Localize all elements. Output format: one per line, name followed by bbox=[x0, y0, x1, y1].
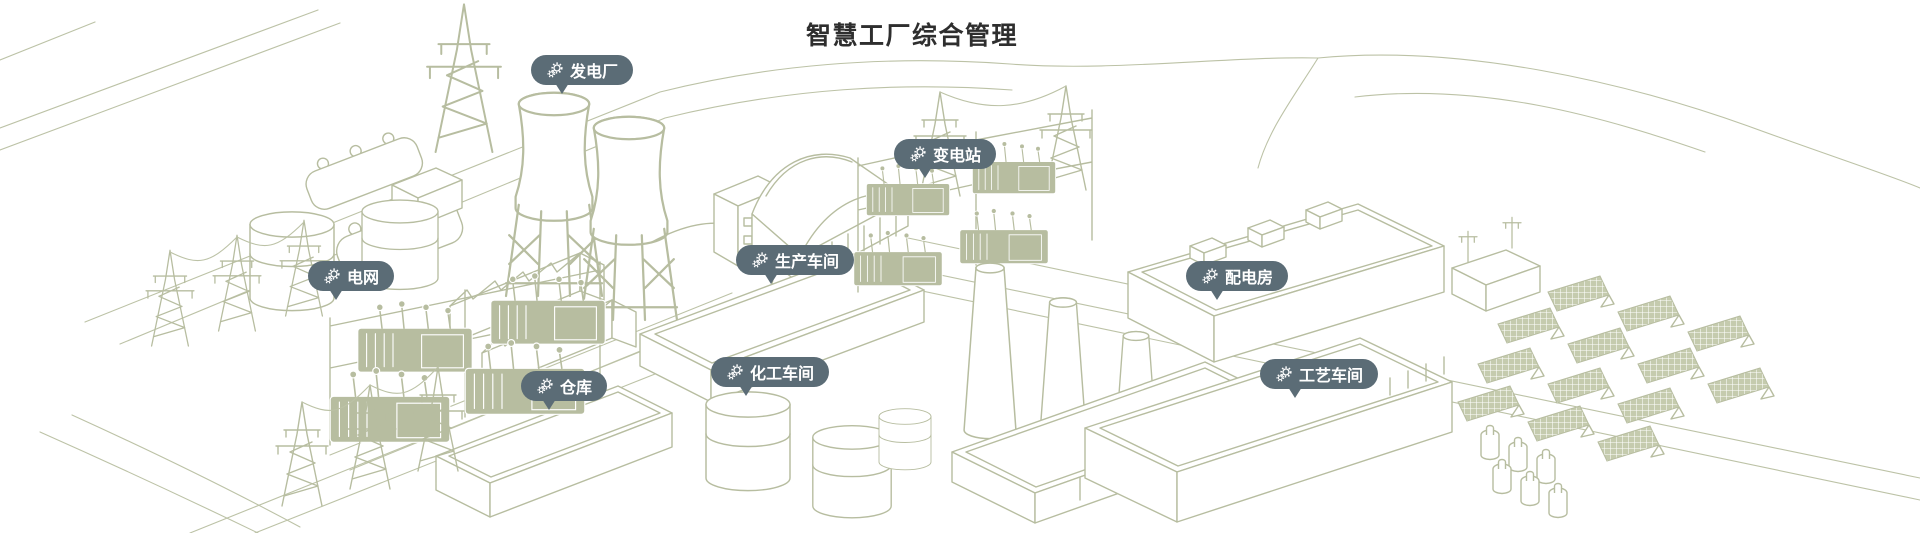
chemical-tanks bbox=[706, 392, 931, 518]
marker-label: 仓库 bbox=[560, 374, 592, 398]
marker-production-workshop[interactable]: 生产车间 bbox=[736, 245, 854, 275]
marker-label: 电网 bbox=[347, 264, 379, 288]
gears-icon bbox=[536, 378, 553, 395]
smart-factory-dashboard: 智慧工厂综合管理 发电厂 变电站 电网 生产车间 配电房 仓库 化工车间 工艺车… bbox=[0, 0, 1920, 533]
marker-label: 变电站 bbox=[933, 142, 981, 166]
marker-warehouse[interactable]: 仓库 bbox=[521, 371, 607, 401]
factory-map-illustration bbox=[0, 0, 1920, 533]
substation-equipment bbox=[854, 86, 1092, 292]
marker-label: 配电房 bbox=[1225, 264, 1273, 288]
gears-icon bbox=[323, 268, 340, 285]
gas-bottles bbox=[1481, 426, 1567, 518]
gears-icon bbox=[726, 364, 743, 381]
marker-substation[interactable]: 变电站 bbox=[894, 139, 996, 169]
marker-process-workshop[interactable]: 工艺车间 bbox=[1260, 359, 1378, 389]
gears-icon bbox=[909, 146, 926, 163]
marker-power-plant[interactable]: 发电厂 bbox=[531, 55, 633, 85]
gears-icon bbox=[1201, 268, 1218, 285]
transmission-tower bbox=[427, 4, 501, 152]
marker-label: 发电厂 bbox=[570, 58, 618, 82]
gears-icon bbox=[1275, 366, 1292, 383]
marker-chemical-workshop[interactable]: 化工车间 bbox=[711, 357, 829, 387]
gears-icon bbox=[546, 62, 563, 79]
marker-label: 工艺车间 bbox=[1299, 362, 1363, 386]
marker-label: 化工车间 bbox=[750, 360, 814, 384]
page-title: 智慧工厂综合管理 bbox=[806, 16, 1018, 52]
gears-icon bbox=[751, 252, 768, 269]
marker-power-grid[interactable]: 电网 bbox=[308, 261, 394, 291]
marker-distribution-room[interactable]: 配电房 bbox=[1186, 261, 1288, 291]
marker-label: 生产车间 bbox=[775, 248, 839, 272]
